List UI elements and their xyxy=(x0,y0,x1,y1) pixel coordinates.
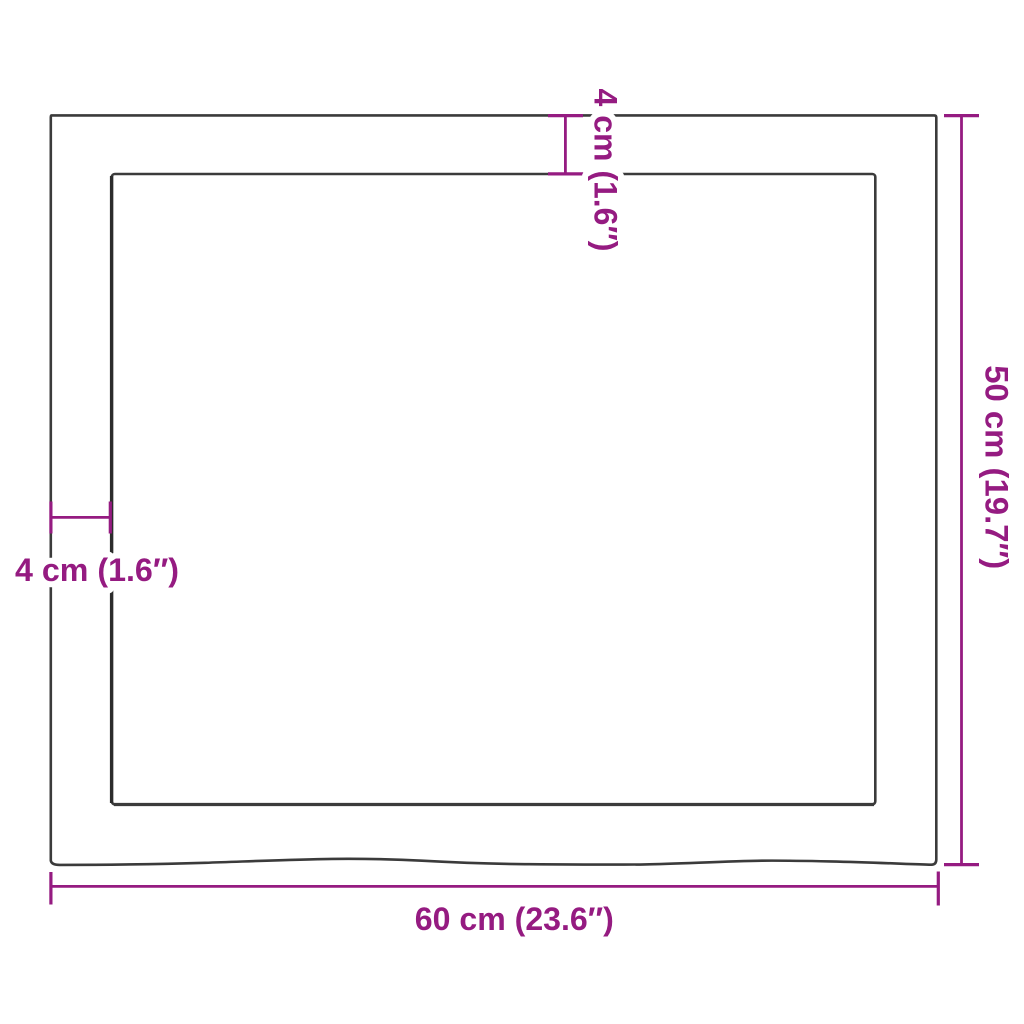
svg-text:50 cm (19.7″): 50 cm (19.7″) xyxy=(978,365,1014,569)
svg-text:4 cm (1.6″): 4 cm (1.6″) xyxy=(15,552,179,588)
svg-text:60 cm (23.6″): 60 cm (23.6″) xyxy=(415,901,614,937)
svg-text:4 cm (1.6″): 4 cm (1.6″) xyxy=(588,89,624,252)
